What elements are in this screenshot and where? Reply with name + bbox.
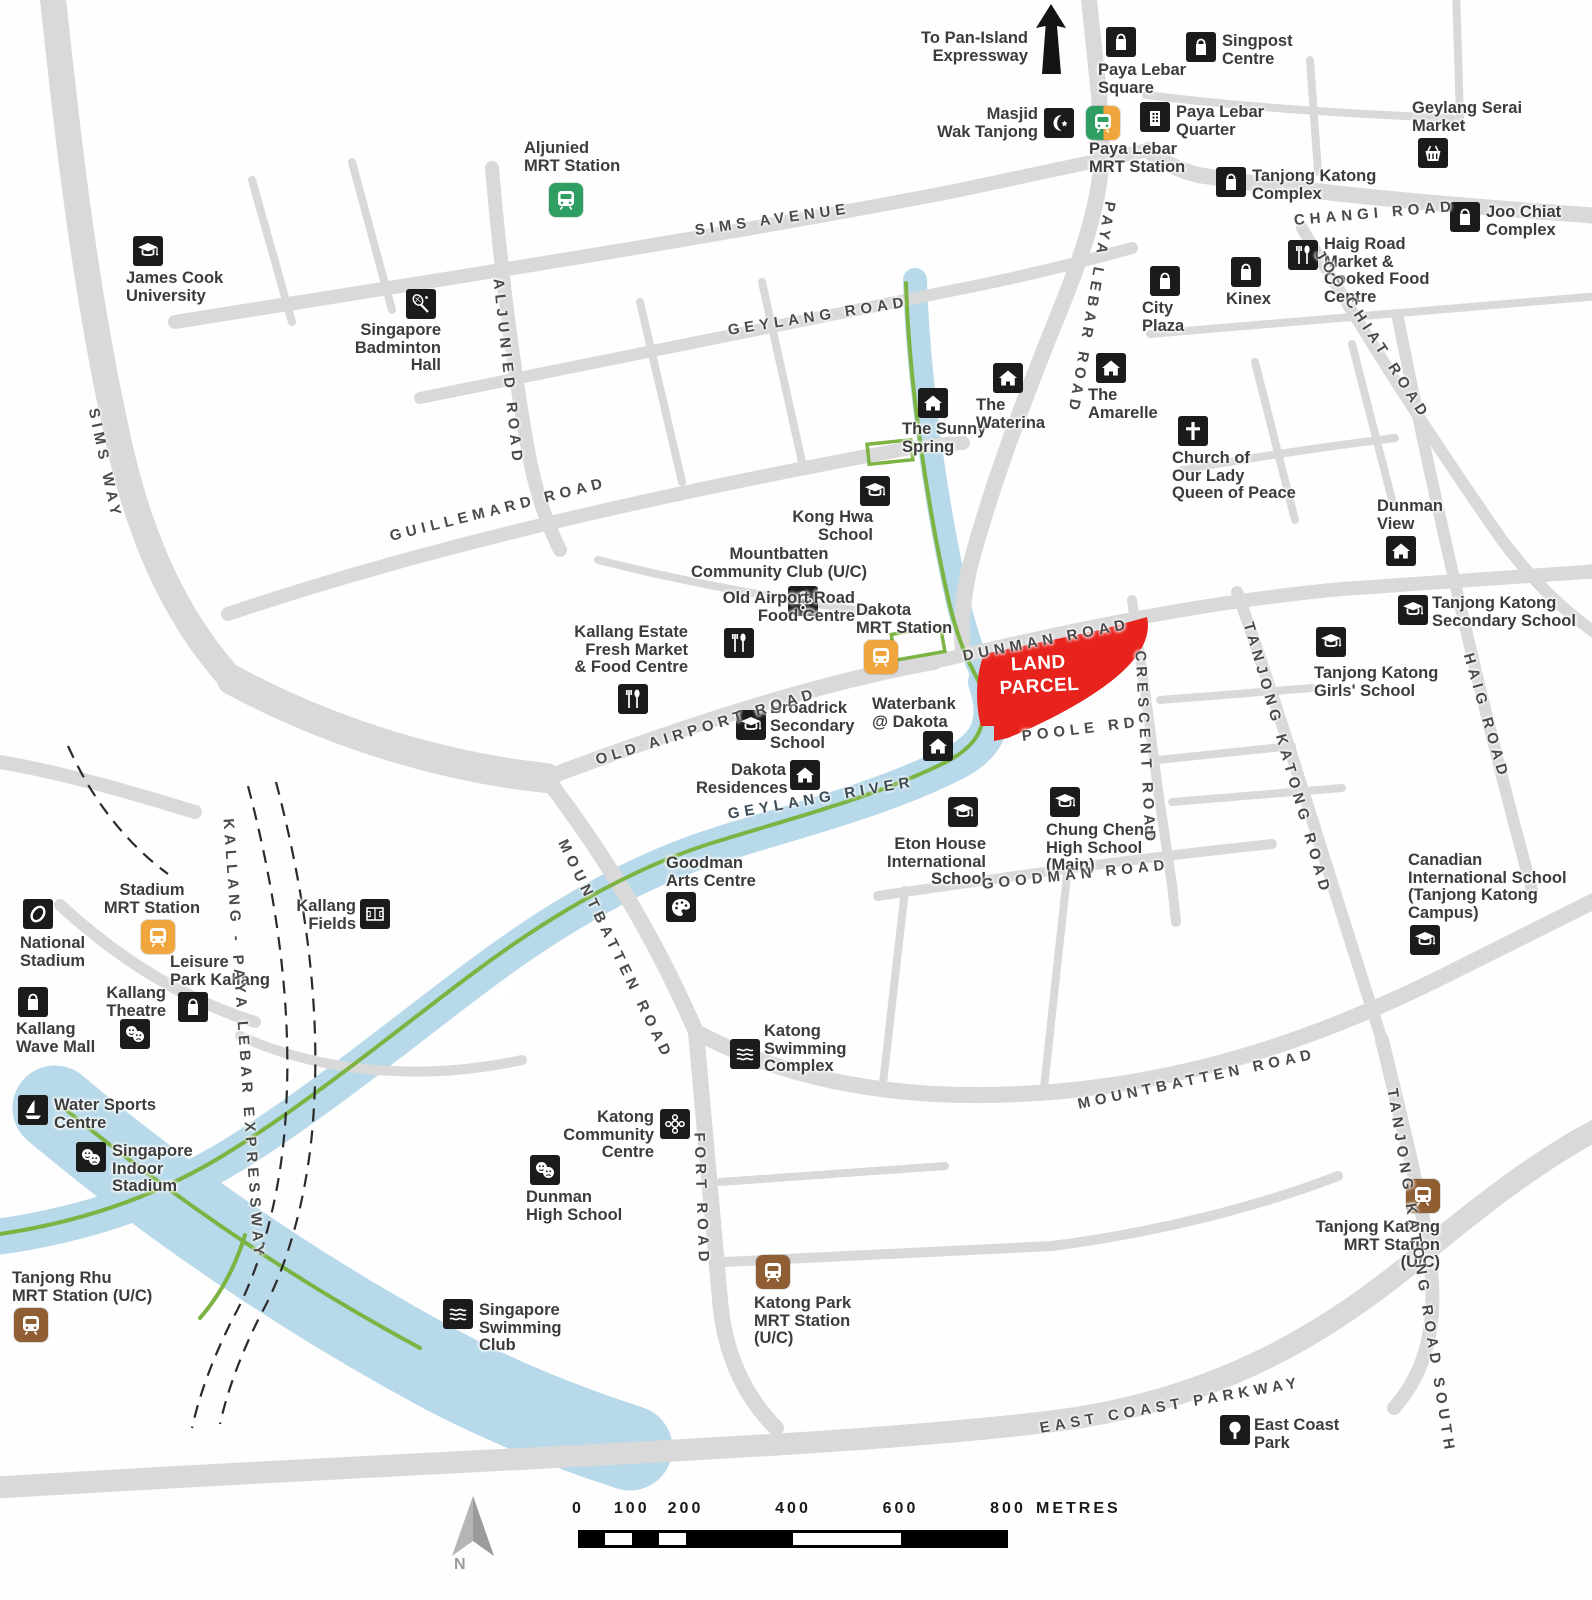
east-coast-park-label: East Coast Park [1254, 1417, 1342, 1452]
singapore-indoor-stadium-label: Singapore Indoor Stadium [112, 1143, 204, 1196]
condo-icon [918, 388, 948, 418]
paya-lebar-quarter-label: Paya Lebar Quarter [1176, 104, 1276, 139]
mrt-train-icon [549, 183, 583, 217]
stadium-mrt-station-label: Stadium MRT Station [88, 882, 216, 917]
labels-layer: Paya Lebar SquareSingpost CentreMasjid W… [0, 0, 1592, 1600]
condo-icon [1096, 353, 1126, 383]
scale-bar-ticks: 0100200400600800METRES [578, 1500, 1138, 1522]
national-stadium-label: National Stadium [20, 935, 110, 970]
sailboat-icon [18, 1095, 48, 1125]
graduation-cap-icon [860, 476, 890, 506]
road-label-fort-road: FORT ROAD [691, 1132, 713, 1267]
mrt-train-icon [141, 920, 175, 954]
compass-north-label: N [454, 1556, 466, 1574]
city-plaza-label: City Plaza [1142, 300, 1202, 335]
theatre-masks-icon [76, 1142, 106, 1172]
road-label-joo-chiat-road: JOO CHIAT ROAD [1311, 247, 1434, 423]
badminton-racquet-icon [406, 289, 436, 319]
kallang-wave-mall-label: Kallang Wave Mall [16, 1021, 111, 1056]
shopping-bag-icon [1106, 27, 1136, 57]
water-sports-centre-label: Water Sports Centre [54, 1097, 159, 1132]
road-label-kallang-paya-lebar-expressway: KALLANG - PAYA LEBAR EXPRESSWAY [220, 818, 268, 1261]
condo-icon [1386, 536, 1416, 566]
mrt-train-icon [756, 1255, 790, 1289]
dakota-mrt-station-label: Dakota MRT Station [856, 602, 968, 637]
road-label-guillemard-road: GUILLEMARD ROAD [388, 474, 609, 545]
road-label-poole-rd: POOLE RD [1021, 714, 1141, 745]
tanjong-katong-girls-school-label: Tanjong Katong Girls' School [1314, 665, 1452, 700]
road-label-sims-way: SIMS WAY [85, 407, 125, 522]
scale-tick-200: 200 [668, 1500, 704, 1518]
joo-chiat-complex-label: Joo Chiat Complex [1486, 204, 1581, 239]
paya-lebar-square-label: Paya Lebar Square [1098, 62, 1208, 97]
tanjong-rhu-mrt-station-label: Tanjong Rhu MRT Station (U/C) [12, 1270, 164, 1305]
dakota-residences-label: Dakota Residences [696, 762, 786, 797]
graduation-cap-icon [133, 236, 163, 266]
eton-house-international-school-label: Eton House International School [874, 836, 986, 889]
old-airport-road-food-centre-label: Old Airport Road Food Centre [640, 590, 855, 625]
expressway-direction-arrow-icon [1034, 4, 1068, 79]
art-palette-icon [666, 892, 696, 922]
road-label-paya-lebar-road: PAYA LEBAR ROAD [1064, 200, 1118, 416]
scale-tick-600: 600 [883, 1500, 919, 1518]
geylang-serai-market-label: Geylang Serai Market [1412, 100, 1542, 135]
singapore-swimming-club-label: Singapore Swimming Club [479, 1302, 581, 1355]
to-pan-island-label: To Pan-Island Expressway [921, 29, 1028, 65]
tanjong-katong-complex-label: Tanjong Katong Complex [1252, 168, 1377, 203]
market-basket-icon [1418, 138, 1448, 168]
mrt-train-icon [864, 640, 898, 674]
shopping-bag-icon [178, 992, 208, 1022]
road-label-crescent-road: CRESCENT ROAD [1132, 650, 1159, 846]
the-sunny-spring-label: The Sunny Spring [902, 421, 1002, 456]
food-court-icon [618, 684, 648, 714]
mrt-train-icon [1086, 106, 1120, 140]
graduation-cap-icon [1316, 627, 1346, 657]
road-label-changi-road: CHANGI ROAD [1293, 198, 1456, 229]
compass: N [438, 1494, 508, 1586]
dunman-view-label: Dunman View [1377, 498, 1457, 533]
katong-swimming-complex-label: Katong Swimming Complex [764, 1023, 860, 1076]
dunman-high-school-label: Dunman High School [526, 1189, 638, 1224]
church-cross-icon [1178, 416, 1208, 446]
canadian-international-school-label: Canadian International School (Tanjong K… [1408, 852, 1570, 923]
condo-icon [790, 760, 820, 790]
swimming-waves-icon [730, 1039, 760, 1069]
scale-bar-bar [578, 1530, 1008, 1548]
james-cook-university-label: James Cook University [126, 270, 236, 305]
road-label-aljunied-road: ALJUNIED ROAD [490, 278, 527, 467]
graduation-cap-icon [1410, 925, 1440, 955]
road-label-goodman-road: GOODMAN ROAD [981, 856, 1170, 893]
katong-community-centre-label: Katong Community Centre [550, 1109, 654, 1162]
mrt-train-icon [14, 1308, 48, 1342]
to-pan-island-note: To Pan-Island Expressway [910, 30, 1028, 66]
food-court-icon [724, 628, 754, 658]
road-label-mountbatten-road-upper: MOUNTBATTEN ROAD [554, 837, 676, 1063]
masjid-wak-tanjong-label: Masjid Wak Tanjong [926, 106, 1038, 141]
road-label-tanjong-katong-road: TANJONG KATONG ROAD [1240, 620, 1334, 897]
community-club-icon [660, 1109, 690, 1139]
mosque-crescent-icon [1044, 108, 1074, 138]
scale-unit-label: METRES [1036, 1500, 1121, 1518]
shopping-bag-icon [1216, 167, 1246, 197]
shopping-bag-icon [1186, 32, 1216, 62]
road-label-haig-road: HAIG ROAD [1460, 651, 1512, 781]
aljunied-mrt-station-label: Aljunied MRT Station [524, 140, 639, 175]
shopping-bag-icon [18, 987, 48, 1017]
goodman-arts-centre-label: Goodman Arts Centre [666, 855, 778, 890]
paya-lebar-mrt-station-label: Paya Lebar MRT Station [1089, 141, 1199, 176]
road-label-geylang-road: GEYLANG ROAD [727, 294, 910, 339]
land-parcel-label: LAND PARCEL [982, 650, 1096, 701]
scale-bar: 0100200400600800METRES [578, 1500, 1138, 1548]
theatre-masks-icon [530, 1155, 560, 1185]
building-icon [1140, 102, 1170, 132]
graduation-cap-icon [1050, 787, 1080, 817]
condo-icon [993, 363, 1023, 393]
road-label-mountbatten-road-lower: MOUNTBATTEN ROAD [1076, 1046, 1317, 1113]
shopping-bag-icon [1150, 266, 1180, 296]
singpost-centre-label: Singpost Centre [1222, 33, 1317, 68]
kong-hwa-school-label: Kong Hwa School [776, 509, 873, 544]
scale-tick-100: 100 [614, 1500, 650, 1518]
stadium-icon [23, 899, 53, 929]
scale-tick-800: 800 [990, 1500, 1026, 1518]
singapore-badminton-hall-label: Singapore Badminton Hall [336, 322, 441, 375]
waterbank-at-dakota-label: Waterbank @ Dakota [872, 696, 972, 731]
the-waterina-label: The Waterina [976, 397, 1066, 432]
sports-field-icon [360, 899, 390, 929]
scale-tick-0: 0 [572, 1500, 584, 1518]
north-compass-icon [438, 1494, 508, 1564]
katong-park-mrt-station-label: Katong Park MRT Station (U/C) [754, 1295, 866, 1348]
road-label-sims-avenue: SIMS AVENUE [694, 200, 852, 239]
church-our-lady-queen-of-peace-label: Church of Our Lady Queen of Peace [1172, 450, 1320, 503]
location-map: Paya Lebar SquareSingpost CentreMasjid W… [0, 0, 1592, 1600]
kallang-estate-market-label: Kallang Estate Fresh Market & Food Centr… [546, 624, 688, 677]
kallang-fields-label: Kallang Fields [294, 898, 356, 933]
road-label-old-airport-road: OLD AIRPORT ROAD [594, 685, 820, 769]
kinex-label: Kinex [1226, 291, 1286, 309]
the-amarelle-label: The Amarelle [1088, 387, 1178, 422]
theatre-masks-icon [120, 1019, 150, 1049]
kallang-theatre-label: Kallang Theatre [90, 985, 166, 1020]
road-label-geylang-river: GEYLANG RIVER [727, 773, 916, 823]
scale-tick-400: 400 [775, 1500, 811, 1518]
graduation-cap-icon [948, 797, 978, 827]
road-label-tanjong-katong-road-south: TANJONG KATONG ROAD SOUTH [1384, 1087, 1459, 1455]
road-label-east-coast-parkway: EAST COAST PARKWAY [1039, 1374, 1303, 1437]
tanjong-katong-secondary-school-label: Tanjong Katong Secondary School [1432, 595, 1592, 630]
swimming-waves-icon [443, 1299, 473, 1329]
graduation-cap-icon [1398, 595, 1428, 625]
mountbatten-community-club-label: Mountbatten Community Club (U/C) [660, 546, 898, 581]
community-club-icon [788, 586, 818, 616]
shopping-bag-icon [1231, 257, 1261, 287]
park-tree-icon [1220, 1415, 1250, 1445]
condo-icon [923, 731, 953, 761]
